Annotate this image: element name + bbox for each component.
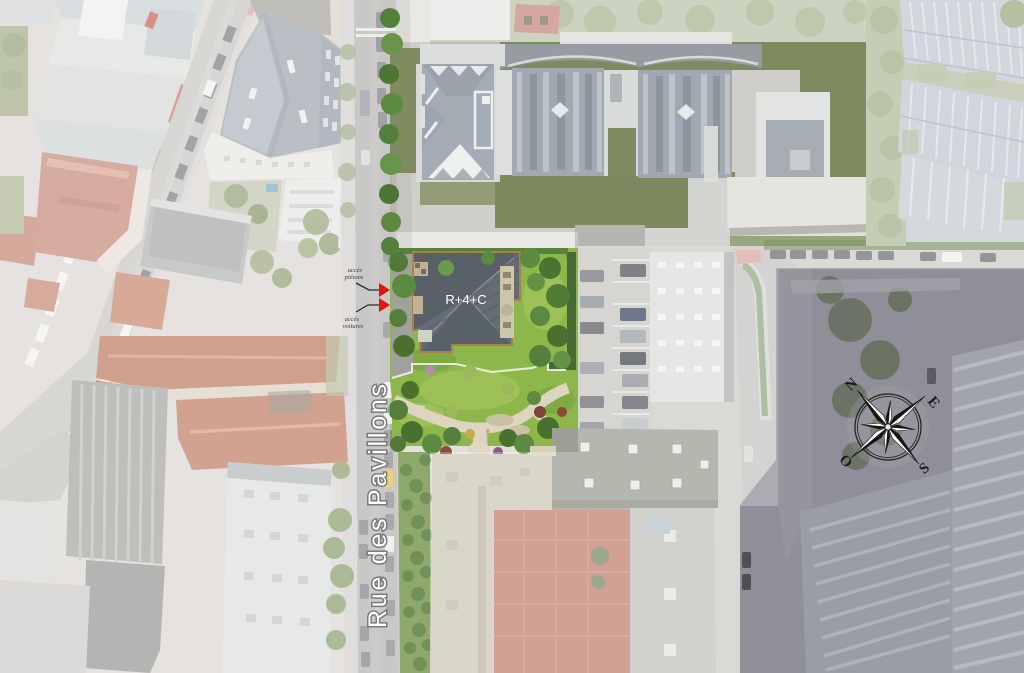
svg-text:accès: accès bbox=[345, 316, 360, 323]
svg-text:accès: accès bbox=[348, 267, 363, 274]
svg-text:R+4+C: R+4+C bbox=[445, 292, 486, 307]
svg-text:Rue des Pavillons: Rue des Pavillons bbox=[364, 384, 392, 628]
svg-text:piétons: piétons bbox=[344, 274, 364, 281]
svg-text:voitures: voitures bbox=[343, 323, 364, 330]
